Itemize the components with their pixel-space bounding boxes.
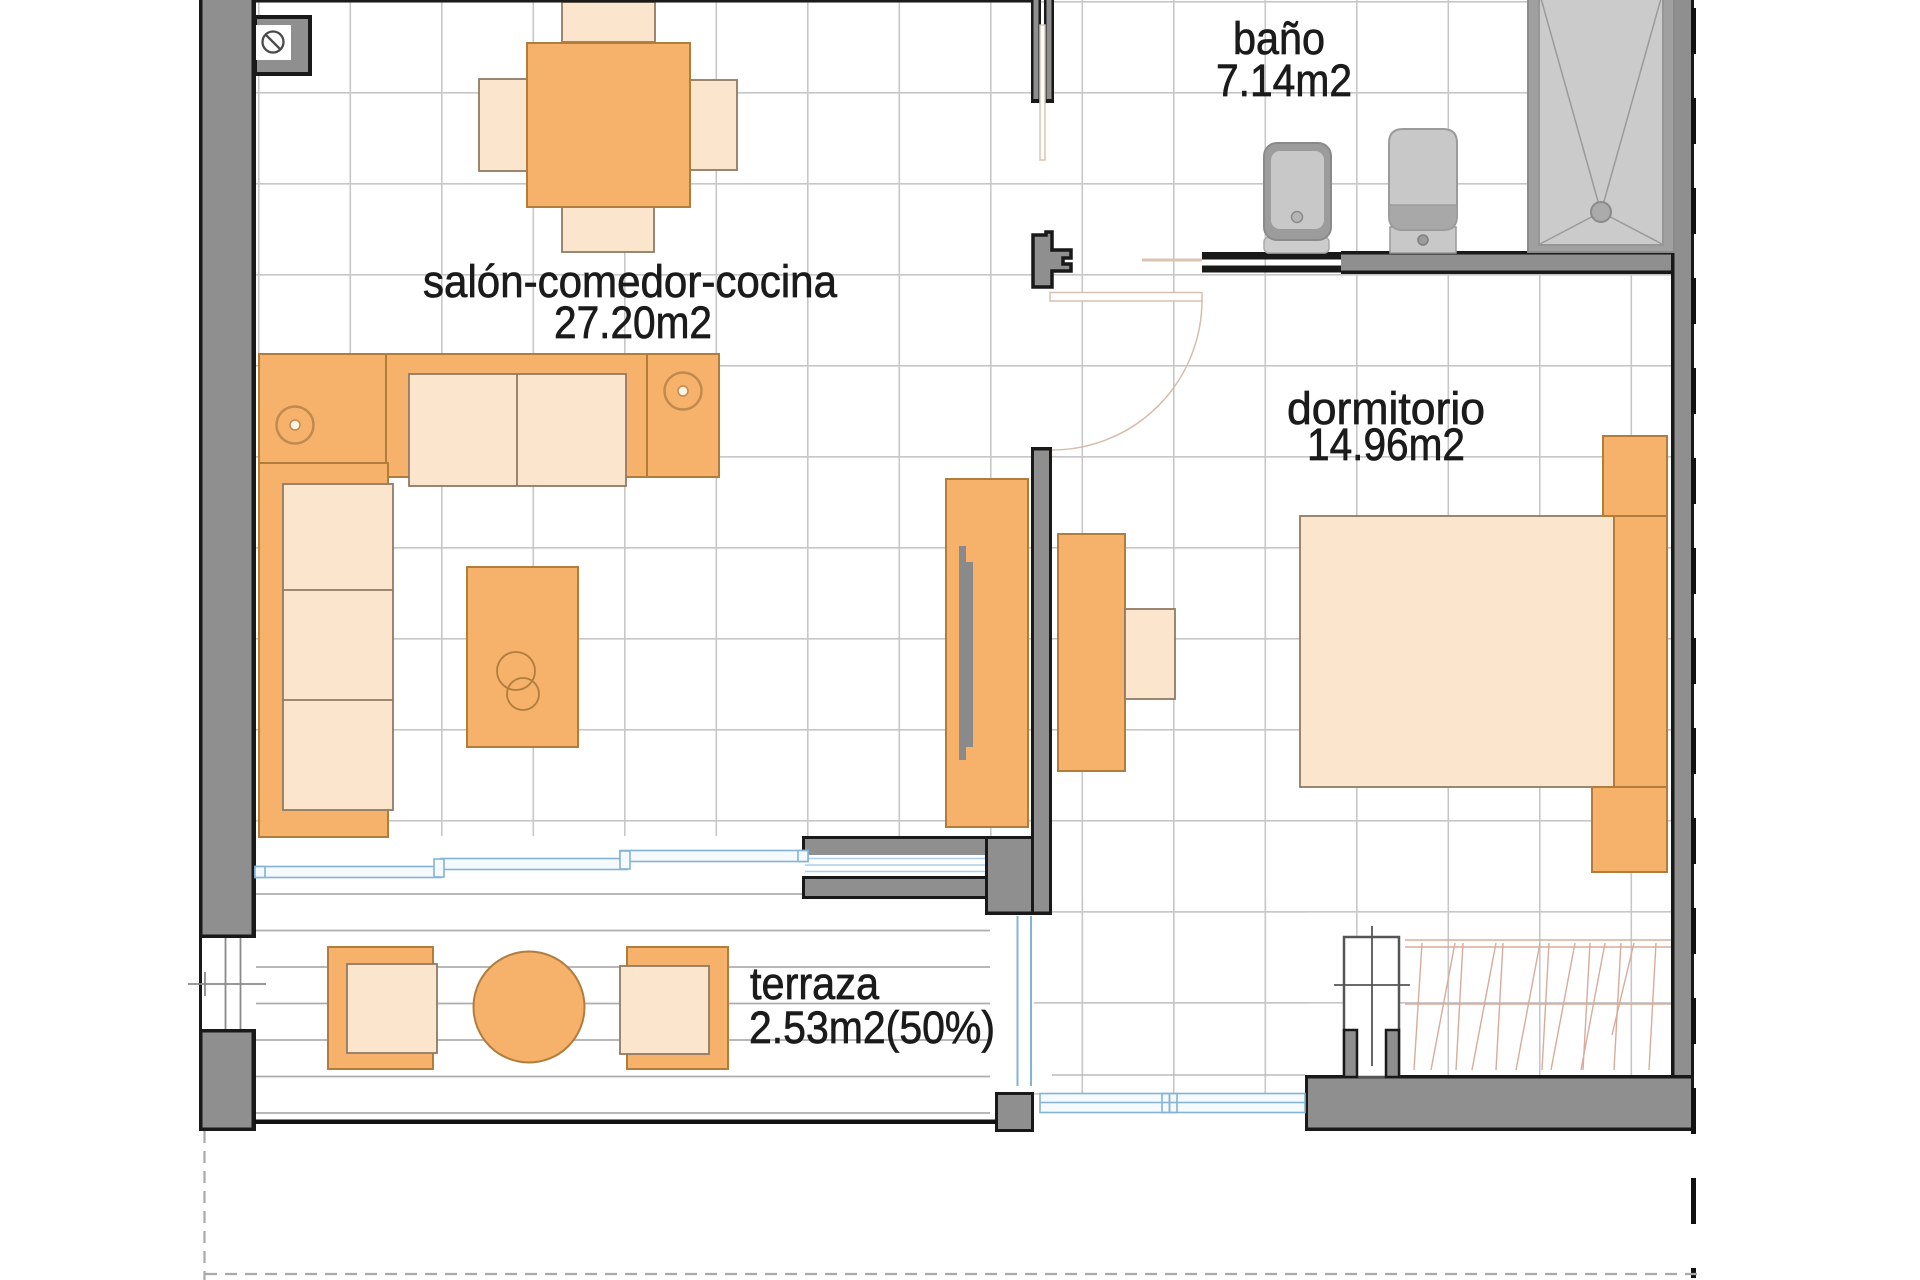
svg-text:14.96m2: 14.96m2 (1307, 419, 1465, 470)
svg-text:7.14m2: 7.14m2 (1216, 55, 1352, 106)
svg-text:2.53m2(50%): 2.53m2(50%) (749, 1002, 995, 1053)
svg-text:27.20m2: 27.20m2 (554, 297, 712, 348)
